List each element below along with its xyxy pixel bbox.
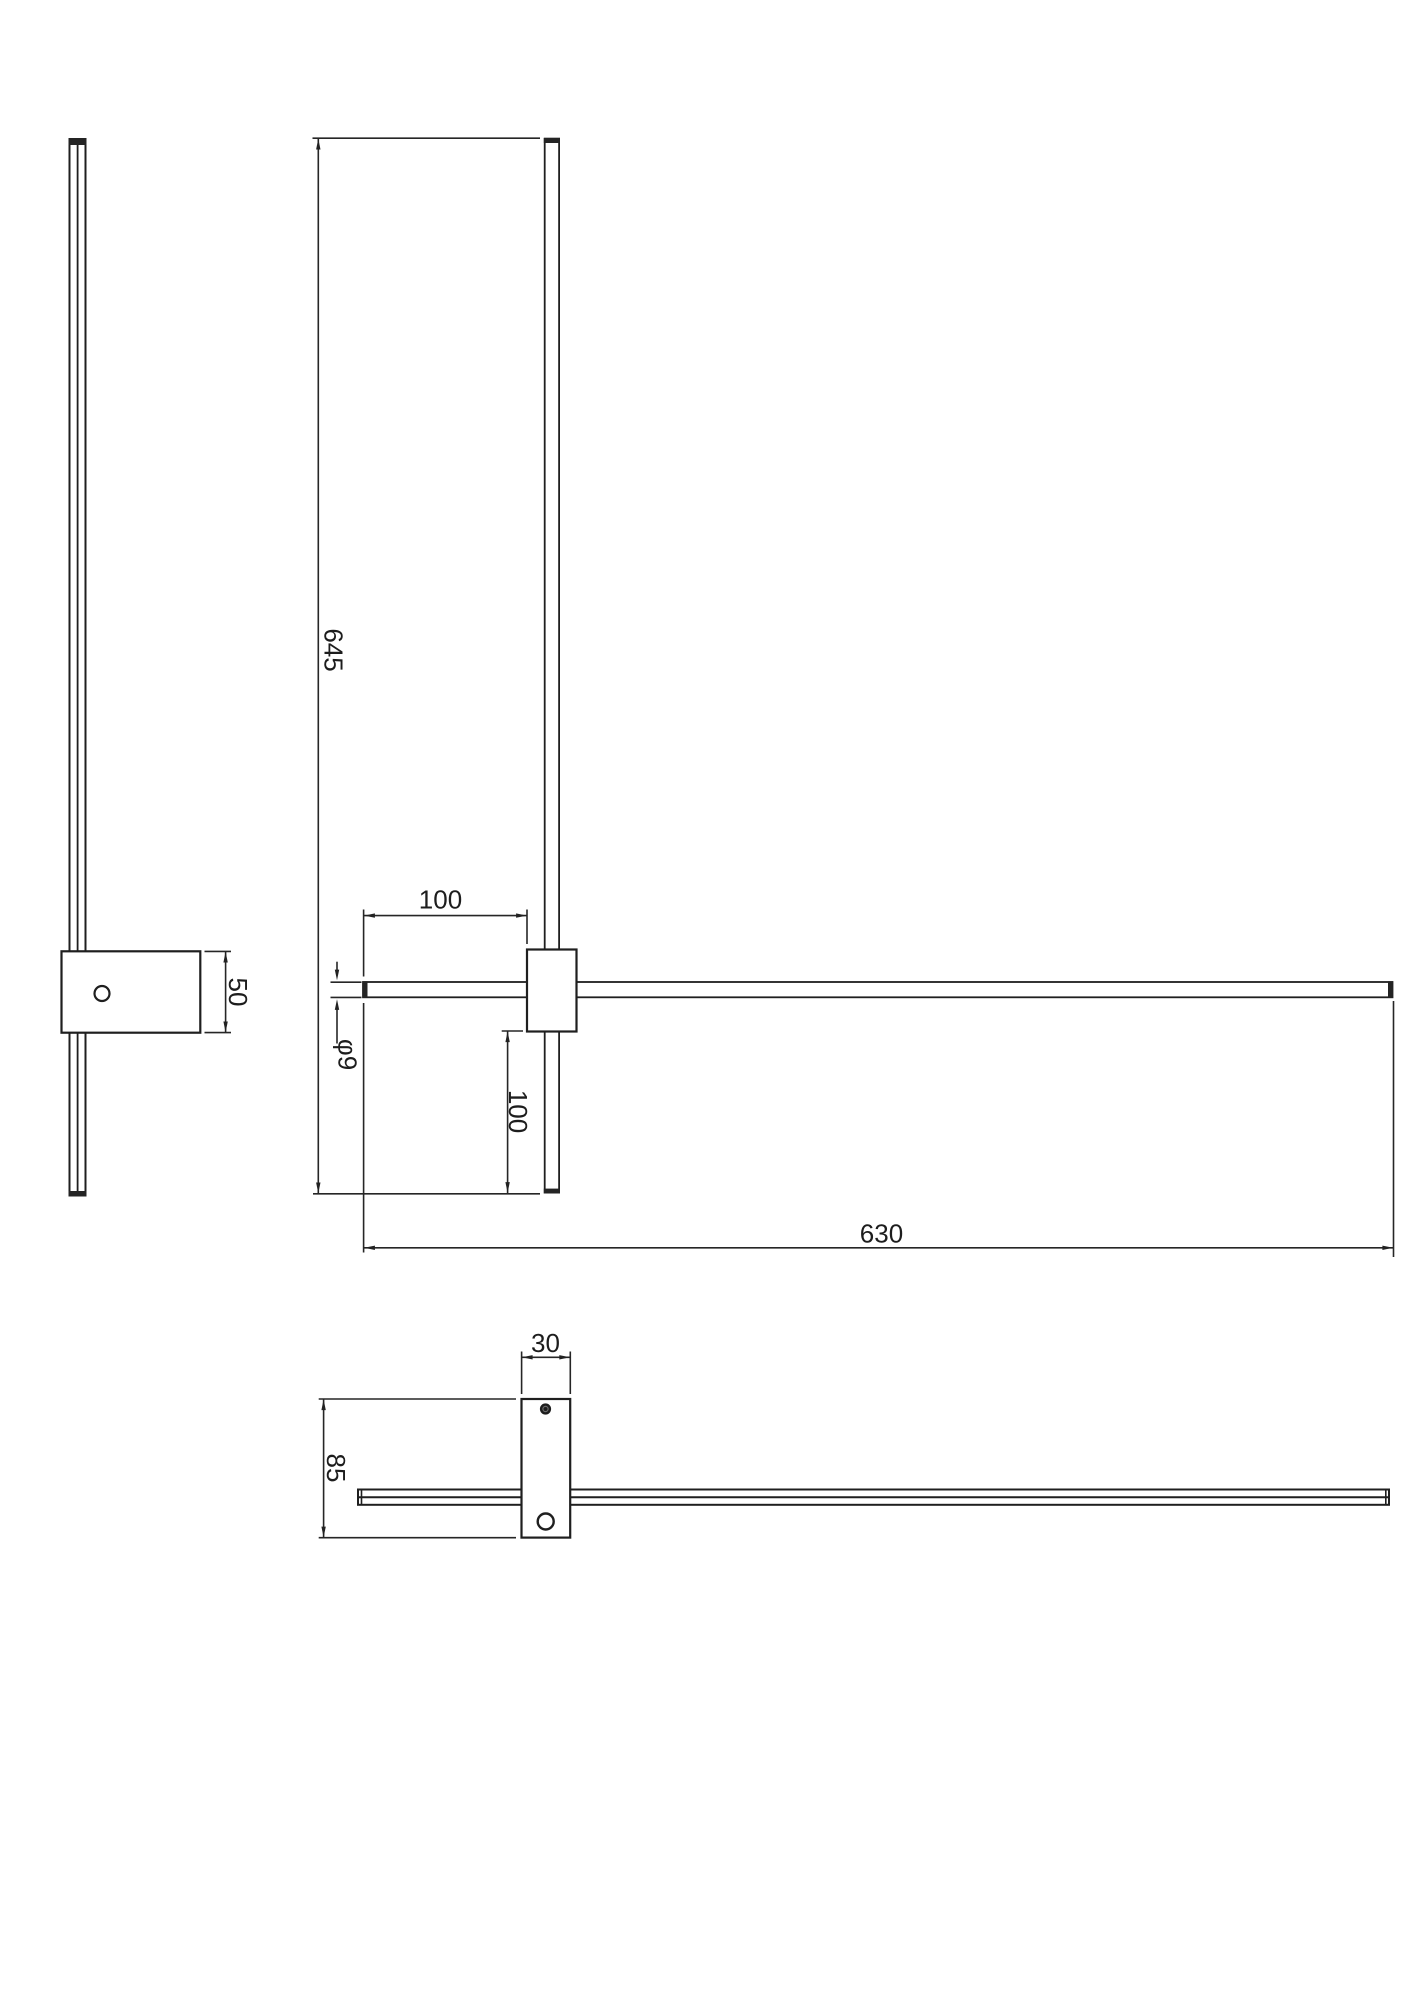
svg-text:85: 85 — [321, 1454, 351, 1483]
svg-text:645: 645 — [319, 628, 349, 671]
svg-text:50: 50 — [223, 978, 253, 1007]
svg-text:630: 630 — [860, 1218, 903, 1248]
svg-text:φ9: φ9 — [333, 1039, 363, 1070]
svg-text:30: 30 — [531, 1328, 560, 1358]
svg-text:100: 100 — [419, 884, 462, 914]
svg-text:100: 100 — [503, 1090, 533, 1133]
